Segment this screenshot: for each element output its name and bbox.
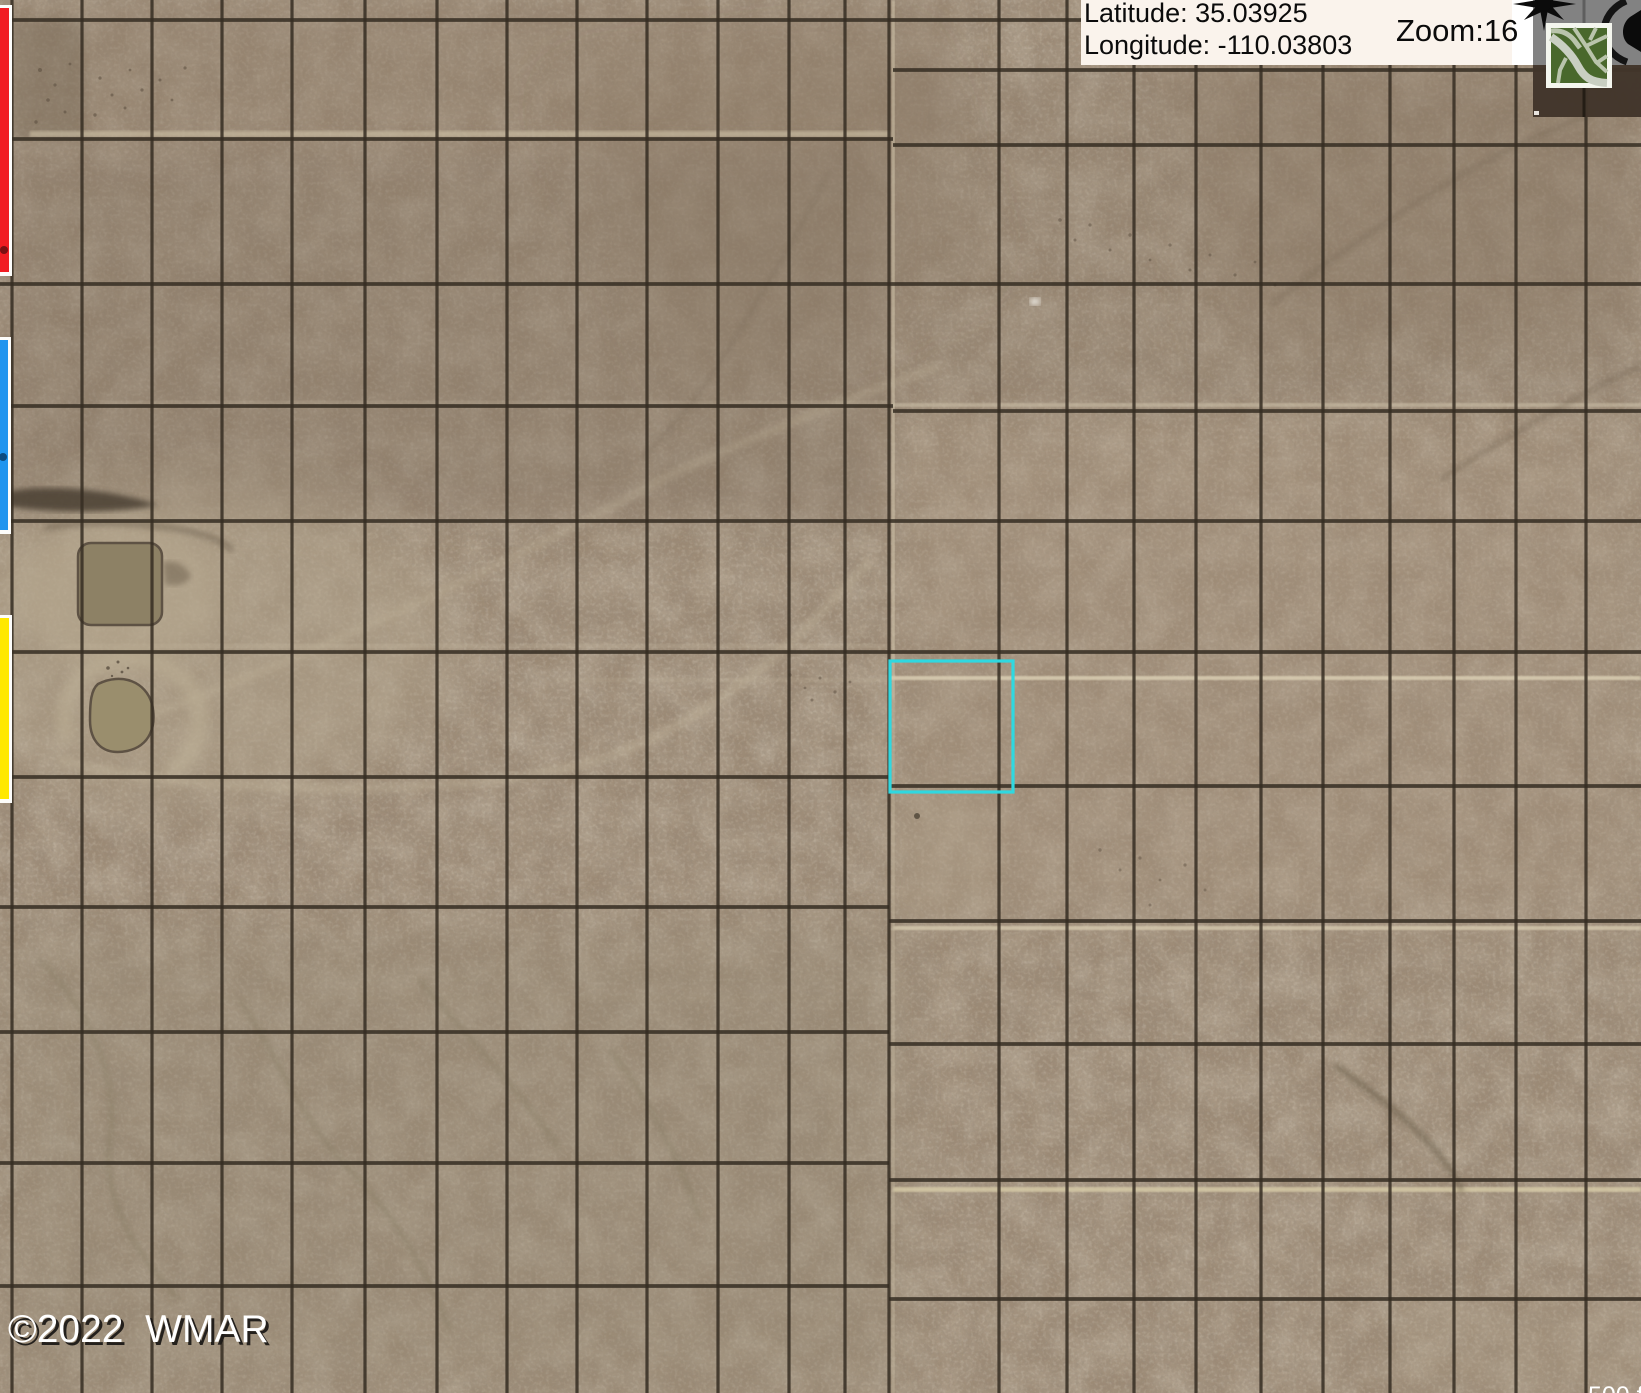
svg-text:©2022 WMAR: ©2022 WMAR bbox=[8, 1308, 269, 1351]
svg-text:500 f: 500 f bbox=[1588, 1382, 1641, 1393]
svg-text:Latitude: 35.03925: Latitude: 35.03925 bbox=[1084, 0, 1308, 28]
svg-text:Longitude: -110.03803: Longitude: -110.03803 bbox=[1084, 30, 1352, 60]
svg-text:Zoom:16: Zoom:16 bbox=[1396, 13, 1518, 48]
